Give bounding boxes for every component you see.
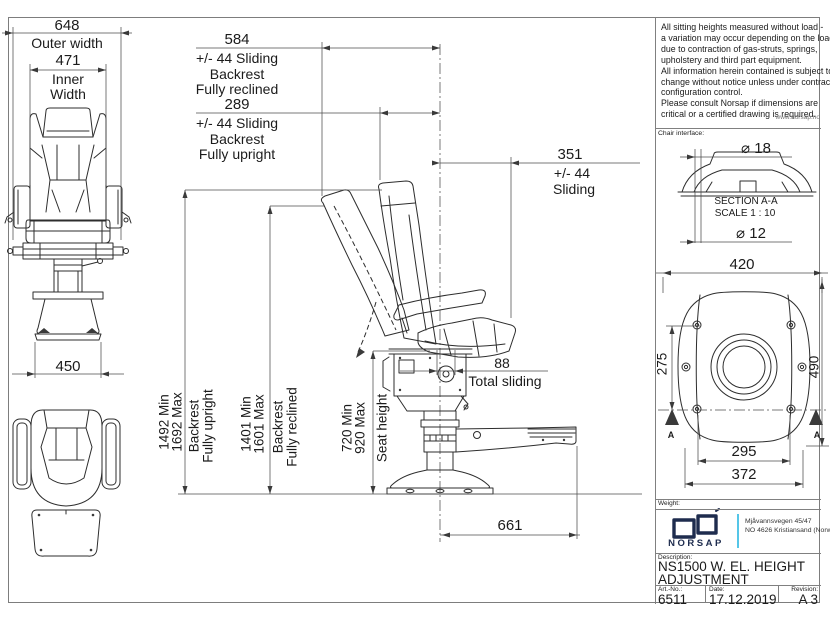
- notes-line: upholstery and third part equipment.: [661, 55, 830, 66]
- notes-line: All information herein contained is subj…: [661, 66, 830, 77]
- dim-base-right-height: 490: [807, 356, 822, 379]
- titleblock-border: [655, 509, 821, 510]
- dim-slide-side-value: 351: [557, 146, 582, 163]
- chair-interface-label: Chair interface:: [658, 130, 704, 137]
- notes-line: All sitting heights measured without loa…: [661, 22, 830, 33]
- dim-outer-width-value: 648: [54, 17, 79, 34]
- drawing-sheet: 648 Outer width 471 Inner Width 450 584 …: [0, 0, 830, 624]
- dim-height-reclined-l2: Fully reclined: [285, 387, 300, 467]
- dim-height-upright-l2: Fully upright: [201, 389, 216, 463]
- dim-height-upright-max: 1692 Max: [170, 392, 185, 451]
- section-marker-left: A: [668, 430, 675, 440]
- dim-inner-width-label2: Width: [50, 86, 86, 102]
- notes-line: due to contraction of gas-struts, spring…: [661, 44, 830, 55]
- section-scale: SCALE 1 : 10: [715, 208, 776, 219]
- dim-slide-upright-l3: Fully upright: [199, 146, 275, 162]
- dim-inner-width-value: 471: [55, 52, 80, 69]
- description-line2: ADJUSTMENT: [658, 572, 749, 587]
- dim-base-width-value: 450: [55, 358, 80, 375]
- panel-divider: [655, 17, 656, 604]
- notes-line: change without notice unless under contr…: [661, 77, 830, 88]
- dim-slide-upright-l1: +/- 44 Sliding: [196, 115, 278, 131]
- address-line1: Mjåvannsvegen 45/47: [745, 518, 812, 525]
- dim-seat-height-max: 920 Max: [353, 402, 368, 454]
- art-no-value: 6511: [658, 592, 687, 607]
- dim-slide-reclined-value: 584: [224, 31, 249, 48]
- plan-view-drawing: [13, 410, 120, 556]
- dim-depth-value: 661: [497, 517, 522, 534]
- notes-line: Please consult Norsap if dimensions are: [661, 98, 830, 109]
- dim-slide-upright-value: 289: [224, 96, 249, 113]
- dim-base-width: 420: [729, 256, 754, 273]
- dim-base-left-height: 275: [655, 353, 670, 376]
- norsap-logo-icon: [674, 509, 719, 537]
- titleblock-border: [778, 585, 779, 603]
- dim-slide-side-l1: +/- 44: [554, 165, 590, 181]
- base-top-view-drawing: [658, 292, 827, 443]
- section-title: SECTION A-A: [714, 196, 777, 207]
- dim-slide-reclined-l2: Backrest: [210, 66, 264, 82]
- titleblock-border: [705, 585, 706, 603]
- notes-divider: [655, 128, 821, 129]
- dim-slide-reclined-l3: Fully reclined: [196, 81, 278, 97]
- address-line2: NO 4626 Kristiansand (Norway): [745, 527, 830, 534]
- side-view-drawing: [321, 44, 576, 542]
- notes-line: configuration control.: [661, 87, 830, 98]
- website-text: www.norsap.no: [745, 114, 820, 121]
- logo-accent-bar: [737, 514, 739, 548]
- dim-slide-reclined-l1: +/- 44 Sliding: [196, 50, 278, 66]
- dim-height-reclined-l1: Backrest: [271, 401, 286, 454]
- notes-line: a variation may occur depending on the l…: [661, 33, 830, 44]
- dim-bolt-span: 295: [731, 443, 756, 460]
- dim-seat-slide-value: 88: [494, 355, 510, 371]
- weight-label: Weight:: [658, 500, 680, 507]
- dim-outer-span: 372: [731, 466, 756, 483]
- dim-dia-top: ⌀ 18: [741, 139, 771, 157]
- revision-value: A 3: [782, 592, 818, 607]
- dim-seat-slide-label: Total sliding: [468, 373, 541, 389]
- dim-dia-bottom: ⌀ 12: [736, 224, 766, 242]
- notes-block: All sitting heights measured without loa…: [661, 22, 830, 120]
- date-value: 17.12.2019: [709, 592, 777, 607]
- brand-name: NORSAP: [668, 538, 724, 549]
- section-marker-right: A: [814, 430, 821, 440]
- front-view-drawing: [5, 108, 131, 340]
- dim-height-upright-l1: Backrest: [187, 400, 202, 453]
- dim-inner-width-label1: Inner: [52, 71, 84, 87]
- dim-slide-upright-l2: Backrest: [210, 131, 264, 147]
- dim-height-reclined-max: 1601 Max: [252, 394, 267, 453]
- dim-slide-side-l2: Sliding: [553, 181, 595, 197]
- dim-seat-height-label: Seat height: [375, 394, 390, 462]
- dim-outer-width-label: Outer width: [31, 35, 103, 51]
